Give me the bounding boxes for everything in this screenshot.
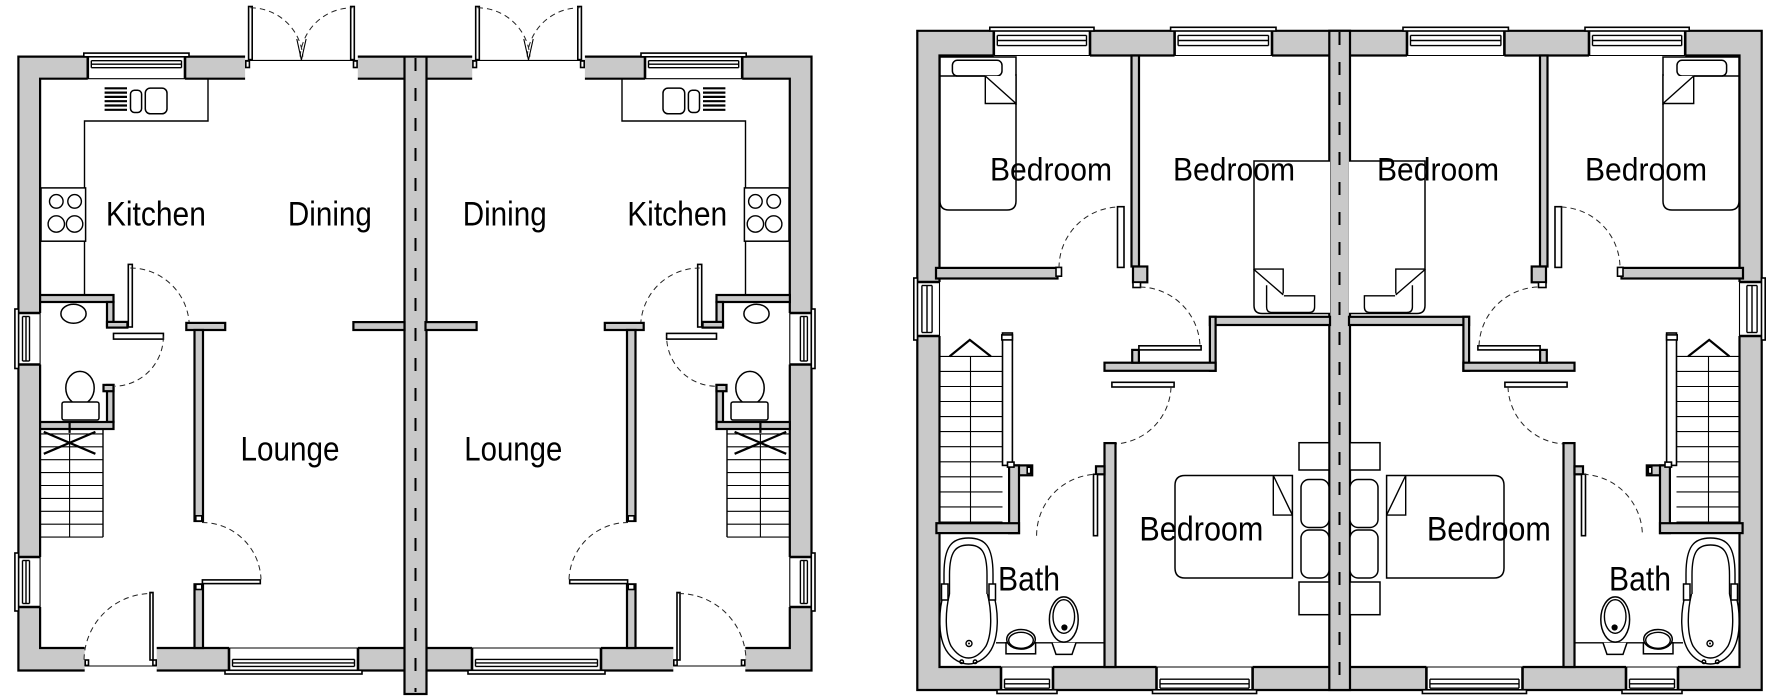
svg-text:Bedroom: Bedroom [1377, 151, 1499, 187]
svg-text:Bedroom: Bedroom [1427, 511, 1551, 549]
svg-text:Bedroom: Bedroom [1585, 151, 1707, 187]
svg-text:Bedroom: Bedroom [1173, 151, 1295, 187]
svg-text:Bath: Bath [1609, 561, 1671, 599]
svg-text:Lounge: Lounge [464, 431, 562, 469]
svg-text:Bedroom: Bedroom [1139, 511, 1263, 549]
svg-text:Bedroom: Bedroom [990, 151, 1112, 187]
svg-text:Dining: Dining [463, 196, 547, 234]
svg-text:Bath: Bath [998, 561, 1060, 599]
svg-text:Lounge: Lounge [241, 431, 340, 469]
svg-text:Dining: Dining [288, 196, 372, 234]
svg-text:Kitchen: Kitchen [627, 196, 727, 234]
svg-text:Kitchen: Kitchen [106, 196, 206, 234]
